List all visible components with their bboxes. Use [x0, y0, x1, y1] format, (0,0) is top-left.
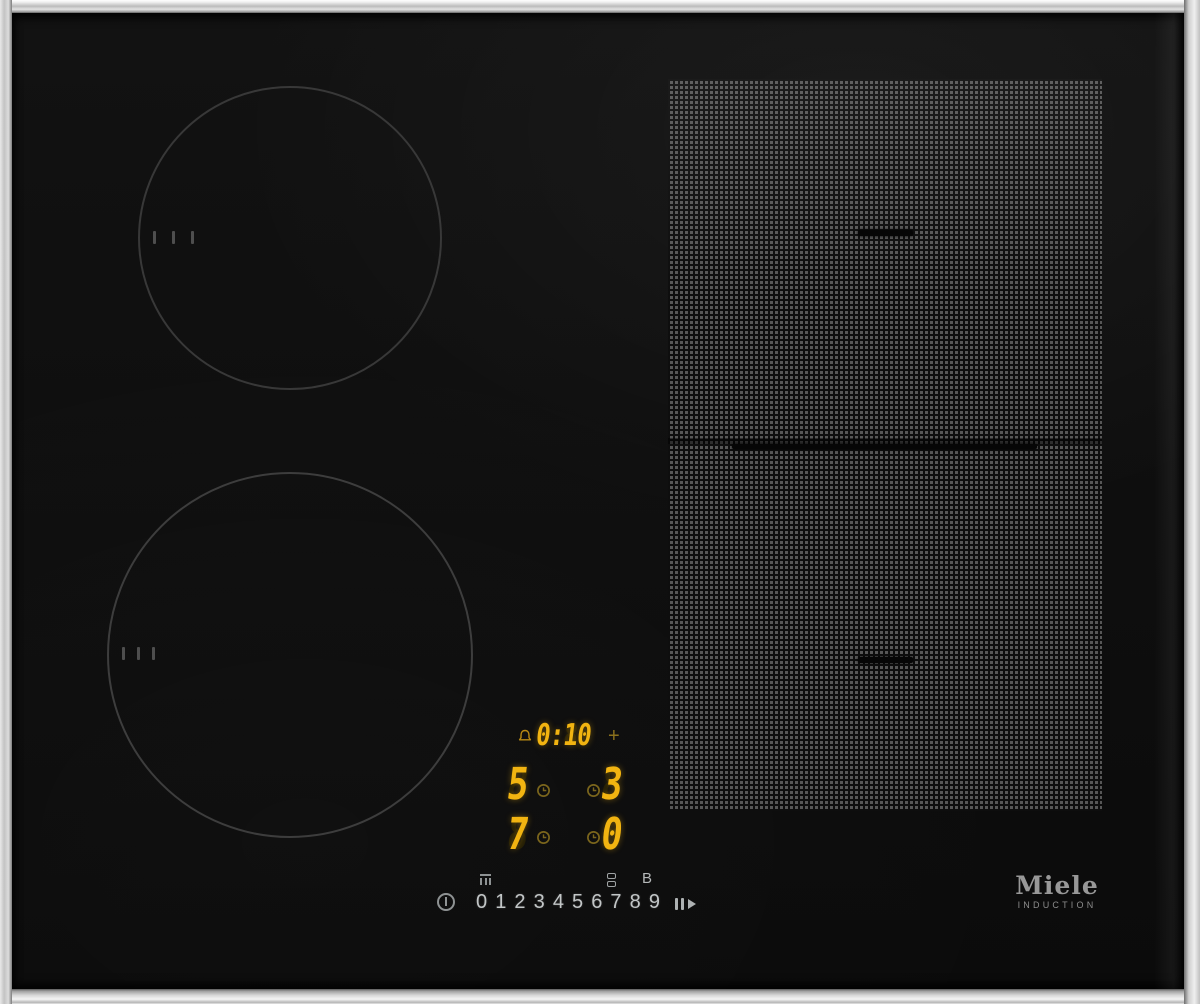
digit-key-8[interactable]: 8: [630, 891, 641, 914]
keep-warm-icon[interactable]: [479, 874, 492, 886]
tick-mark: [153, 231, 156, 244]
digit-key-1[interactable]: 1: [495, 891, 506, 914]
brand-tagline: INDUCTION: [997, 900, 1117, 910]
powerflex-front-center-marker: [858, 657, 913, 663]
power-level-display-front-left: 8 7: [505, 813, 532, 857]
timer-value: 0:10: [534, 718, 593, 753]
digit-key-4[interactable]: 4: [553, 891, 564, 914]
power-level-value: 3: [598, 759, 625, 810]
power-select-digit-row: 0 1 2 3 4 5 6 7 8 9: [476, 891, 660, 914]
tick-mark: [152, 647, 155, 660]
brand-name: Miele: [997, 873, 1117, 899]
digit-key-0[interactable]: 0: [476, 891, 487, 914]
tick-mark: [191, 231, 194, 244]
keep-warm-bar: [480, 878, 482, 885]
digit-key-2[interactable]: 2: [514, 891, 525, 914]
tick-mark: [137, 647, 140, 660]
digit-key-7[interactable]: 7: [610, 891, 621, 914]
powerflex-rear-center-marker: [858, 230, 913, 236]
glass-edge-reflection: [1154, 13, 1184, 989]
power-icon[interactable]: [437, 893, 455, 911]
power-level-display-rear-left: 8 5: [505, 763, 532, 807]
steel-frame-left: [0, 0, 12, 1004]
timer-plus-key[interactable]: +: [608, 725, 620, 748]
bridge-zones-icon[interactable]: [607, 873, 617, 887]
bridge-square: [607, 881, 616, 887]
zone-timer-clock-icon: [536, 783, 551, 803]
power-level-display-front-flex: 8 0: [599, 813, 626, 857]
timer-display: 8:88 0:10: [534, 721, 592, 751]
steel-frame-top: [0, 0, 1200, 13]
timer-bell-icon: [517, 729, 533, 749]
tick-mark: [122, 647, 125, 660]
power-level-value: 5: [504, 759, 531, 810]
keep-warm-bar: [480, 874, 491, 876]
pause-bar: [675, 898, 678, 910]
play-triangle: [688, 899, 696, 909]
digit-key-9[interactable]: 9: [649, 891, 660, 914]
induction-cooktop: 8:88 0:10 + 8 5 8 3 8 7 8 0: [0, 0, 1200, 1004]
pause-bar: [681, 898, 684, 910]
steel-frame-right: [1184, 0, 1200, 1004]
zone-size-ticks-rear: [153, 231, 194, 244]
powerflex-divider-line: [732, 444, 1037, 449]
bridge-square: [607, 873, 616, 879]
ceramic-glass-surface: 8:88 0:10 + 8 5 8 3 8 7 8 0: [12, 13, 1184, 989]
brand-logo: Miele INDUCTION: [997, 873, 1117, 910]
keep-warm-bar: [485, 878, 487, 885]
cooking-zone-front-left: [107, 472, 473, 838]
digit-key-6[interactable]: 6: [591, 891, 602, 914]
powerflex-zone-area: [668, 79, 1102, 811]
booster-key[interactable]: B: [642, 870, 652, 887]
steel-frame-bottom: [0, 989, 1200, 1004]
power-level-value: 7: [504, 809, 531, 860]
zone-timer-clock-icon: [536, 830, 551, 850]
tick-mark: [172, 231, 175, 244]
digit-key-5[interactable]: 5: [572, 891, 583, 914]
power-level-value: 0: [598, 809, 625, 860]
zone-size-ticks-front: [122, 647, 155, 660]
stop-and-go-icon[interactable]: [675, 897, 696, 910]
digit-key-3[interactable]: 3: [534, 891, 545, 914]
keep-warm-bar: [489, 878, 491, 885]
power-level-display-rear-flex: 8 3: [599, 763, 626, 807]
